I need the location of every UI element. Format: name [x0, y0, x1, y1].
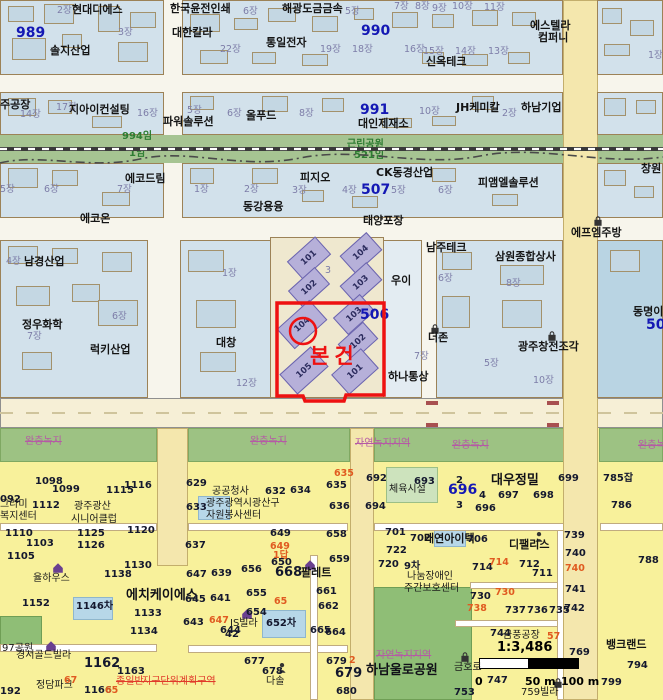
map-label: 한국윤전인쇄 [170, 3, 231, 14]
map-label: 697 [498, 491, 519, 501]
building-footprint [634, 186, 654, 198]
map-label: 7장 [27, 332, 42, 342]
map-label: 16장 [404, 45, 425, 55]
map-label: 1120 [127, 526, 155, 536]
map-label: 에스텔라 [530, 20, 570, 31]
map-label: 699 [558, 474, 579, 484]
street [188, 645, 348, 653]
map-label: 대창 [216, 337, 236, 348]
map-label: 8장 [299, 109, 314, 119]
map-label: 피지오 [300, 172, 330, 183]
map-label: 16장 [137, 109, 158, 119]
map-label: 50 m [525, 676, 556, 687]
map-label: 주간보호센터 [404, 584, 459, 594]
map-label: 완충녹지 [638, 441, 663, 451]
map-label: 644 [220, 626, 241, 636]
map-label: 735 [549, 606, 570, 616]
map-label: 632 [265, 487, 286, 497]
map-label: 9장 [432, 4, 447, 14]
map-label: 799 [601, 678, 622, 688]
building-footprint [312, 16, 338, 32]
map-label: 738 [467, 604, 487, 614]
map-label: 피앰엘솔루션 [478, 177, 539, 188]
map-label: 736 [527, 606, 548, 616]
map-canvas[interactable]: 1011021041031041031021051012장현대디에스9893장솔… [0, 0, 663, 700]
map-label: 1134 [130, 627, 158, 637]
map-label: 740 [565, 549, 586, 559]
map-label: 5장 [187, 106, 202, 116]
map-label: 디팰리스 [509, 539, 549, 550]
building-footprint [636, 100, 656, 114]
map-label: 광주창전조각 [518, 341, 579, 352]
map-label: 8장 [415, 2, 430, 12]
house-icon [45, 637, 57, 649]
map-label: 대한칼라 [172, 27, 212, 38]
building-footprint [102, 252, 132, 272]
map-label: 22장 [220, 45, 241, 55]
map-label: 788 [638, 556, 659, 566]
map-label: 635 [334, 469, 354, 479]
map-label: 1112 [32, 501, 60, 511]
map-label: 696 [475, 504, 496, 514]
building-footprint [442, 252, 472, 270]
map-label: 우이 [391, 275, 411, 286]
map-label: 4 [479, 491, 486, 501]
map-label: 완충녹지 [250, 437, 287, 447]
crosswalk-mark [547, 401, 559, 405]
map-label: 649 [270, 529, 291, 539]
map-label: 737 [505, 606, 526, 616]
map-label: 2 [349, 656, 356, 666]
map-label: 635 [326, 481, 347, 491]
map-label: 5장 [484, 359, 499, 369]
map-label: 근린공원 [347, 140, 384, 150]
map-label: 창원 [641, 163, 661, 174]
map-label: 해광도금금속 [282, 3, 343, 14]
map-label: 올푸드 [246, 110, 276, 121]
map-label: 대우정밀 [491, 474, 539, 487]
shopping-bag-icon [459, 648, 471, 660]
map-label: 동강용융 [243, 201, 283, 212]
map-label: 2장 [502, 109, 517, 119]
map-label: 에코드림 [125, 173, 165, 184]
street [455, 620, 565, 627]
building-footprint [602, 8, 622, 24]
map-label: 67 [64, 676, 77, 686]
building-footprint [190, 168, 214, 184]
map-label: 698 [533, 491, 554, 501]
building-footprint [196, 300, 236, 328]
building-footprint [234, 18, 258, 30]
map-label: 989 [16, 26, 45, 40]
map-label: 3 [456, 501, 463, 511]
map-label: 1125 [77, 529, 105, 539]
map-label: 991 [360, 103, 389, 117]
building-footprint [92, 116, 122, 128]
map-label: 4장 [342, 186, 357, 196]
map-label: 1103 [26, 539, 54, 549]
map-label: 14장 [20, 110, 41, 120]
map-label: 그라미 [0, 500, 28, 510]
map-label: 785잡 [603, 474, 633, 484]
map-label: 본건 [310, 346, 359, 367]
map-label: 711 [532, 569, 553, 579]
map-label: 659 [329, 555, 350, 565]
building-footprint [252, 168, 278, 184]
map-label: 2 [456, 476, 463, 486]
building-footprint [118, 42, 148, 62]
map-label: 794 [627, 661, 648, 671]
map-label: 19장 [320, 45, 341, 55]
map-label: 18장 [352, 45, 373, 55]
map-label: 2장 [244, 185, 259, 195]
map-label: 6장 [112, 312, 127, 322]
map-label: 1105 [7, 552, 35, 562]
map-label: 521임 [354, 151, 384, 161]
map-label: 에코온 [80, 213, 110, 224]
map-label: 1138 [104, 570, 132, 580]
map-label: 658 [326, 530, 347, 540]
map-label: 730 [470, 592, 491, 602]
map-label: 광주광산 [74, 502, 111, 512]
map-label: 645 [185, 595, 206, 605]
building-footprint [16, 286, 50, 306]
map-label: 동명이 [633, 306, 663, 317]
map-label: 706 [467, 535, 488, 545]
map-label: 1162 [84, 657, 120, 670]
map-label: 661 [316, 587, 337, 597]
map-label: 714 [489, 558, 509, 568]
map-label: 664 [325, 628, 346, 638]
map-label: 태양포장 [363, 215, 403, 226]
map-label: 1임 [129, 149, 145, 159]
map-label: 7장 [394, 2, 409, 12]
map-label: 633 [186, 503, 207, 513]
map-label: 삼원종합상사 [495, 251, 556, 262]
map-label: 7장 [117, 185, 132, 195]
building-footprint [502, 300, 542, 328]
map-label: 741 [565, 585, 586, 595]
map-label: 679 [335, 667, 362, 680]
map-label: 7장 [414, 352, 429, 362]
shopping-bag-icon [592, 212, 604, 224]
map-label: 1:3,486 [497, 641, 552, 654]
map-label: 656 [241, 565, 262, 575]
map-label: 신옥테크 [426, 56, 466, 67]
map-label: 자원봉사센터 [206, 511, 261, 521]
building-footprint [432, 168, 456, 182]
map-label: 복지센터 [0, 512, 37, 522]
map-label: 662 [318, 602, 339, 612]
building-number: 104 [292, 315, 312, 334]
map-label: 50 [646, 318, 663, 332]
map-label: 3 [325, 266, 331, 276]
map-label: 994임 [122, 132, 152, 142]
map-label: 639 [211, 569, 232, 579]
building-number: 101 [299, 248, 319, 267]
building-number: 102 [299, 278, 319, 297]
map-label: 1133 [134, 609, 162, 619]
map-label: 668 [275, 566, 302, 579]
map-label: 1152 [22, 599, 50, 609]
map-label: 6장 [227, 109, 242, 119]
street [600, 523, 663, 531]
map-label: 컴퍼니 [538, 32, 568, 43]
road [157, 428, 188, 566]
scale-bar-white [479, 658, 529, 669]
map-label: 730 [495, 588, 515, 598]
map-label: 1장 [222, 269, 237, 279]
map-label: 507 [361, 183, 390, 197]
map-label: 10장 [533, 376, 554, 386]
map-label: 1126 [77, 541, 105, 551]
map-label: 하남기업 [521, 102, 561, 113]
map-label: 769 [569, 648, 590, 658]
map-label: 13장 [488, 47, 509, 57]
building-footprint [442, 296, 470, 328]
crosswalk-mark [426, 423, 438, 427]
map-label: 더존 [428, 332, 448, 343]
map-label: 하나통상 [388, 371, 428, 382]
building-footprint [252, 52, 276, 64]
map-label: 65 [105, 686, 118, 696]
map-label: 5장 [391, 186, 406, 196]
building-footprint [432, 14, 454, 28]
map-label: 680 [336, 687, 357, 697]
shopping-bag-icon [546, 327, 558, 339]
map-label: 공공청사 [212, 487, 249, 497]
building-footprint [604, 98, 626, 116]
map-label: 남경산업 [24, 256, 64, 267]
building-footprint [188, 250, 224, 272]
scale-bar-black [529, 658, 579, 669]
map-label: 0 [475, 676, 483, 687]
building-footprint [200, 352, 236, 372]
map-label: 6장 [438, 186, 453, 196]
building-footprint [610, 250, 640, 272]
map-label: 10장 [419, 107, 440, 117]
map-label: 652차 [266, 619, 296, 629]
building-footprint [604, 44, 630, 56]
map-label: 654 [246, 608, 267, 618]
building-footprint [12, 38, 46, 60]
map-label: 693 [414, 477, 435, 487]
map-label: 1116 [124, 481, 152, 491]
map-label: 747 [487, 676, 508, 686]
map-label: 1장 [194, 185, 209, 195]
building-footprint [630, 20, 654, 36]
map-label: 12장 [236, 379, 257, 389]
map-label: 1146차 [76, 602, 113, 612]
map-label: 192 [0, 687, 21, 697]
map-label: 6장 [243, 7, 258, 17]
map-label: 629 [186, 479, 207, 489]
map-label: 솔지산업 [50, 45, 90, 56]
map-label: 남주테크 [426, 242, 466, 253]
map-label: 739 [564, 531, 585, 541]
building-footprint [492, 194, 518, 206]
map-label: 에프엠주방 [571, 227, 622, 238]
map-label: 634 [290, 486, 311, 496]
map-label: 시니어클럽 [71, 515, 117, 525]
map-label: 8장 [506, 279, 521, 289]
map-label: 3장 [118, 28, 133, 38]
map-label: 1099 [52, 485, 80, 495]
building-footprint [302, 54, 328, 66]
buffer-strip [0, 428, 157, 462]
map-label: 럭키산업 [90, 344, 130, 355]
map-label: 701 [385, 528, 406, 538]
building-footprint [130, 12, 156, 28]
building-number: 103 [351, 273, 371, 292]
map-label: 지구단위계획구역 [142, 677, 216, 687]
map-label: 5장 [345, 7, 360, 17]
house-icon [52, 559, 64, 571]
street [470, 582, 565, 589]
street [188, 523, 348, 531]
map-label: 다솔 [266, 677, 284, 687]
map-label: 자연녹지지역 [355, 439, 410, 449]
map-label: 722 [386, 546, 407, 556]
map-label: 100 m [561, 676, 599, 687]
map-label: 720 [378, 560, 399, 570]
building-footprint [22, 352, 52, 370]
map-label: 정우화학 [22, 319, 62, 330]
building-footprint [8, 6, 34, 22]
map-label: 11장 [484, 3, 505, 13]
map-label: 종일반 [116, 677, 144, 687]
building-footprint [432, 116, 456, 126]
map-label: 647 [186, 570, 207, 580]
map-label: 완충녹지 [25, 437, 62, 447]
map-label: 광주광역시광산구 [206, 499, 280, 509]
map-label: 1장 [648, 51, 663, 61]
map-label: 6장 [44, 185, 59, 195]
map-label: 4장 [6, 257, 21, 267]
map-label: JH케미칼 [456, 102, 500, 113]
map-label: 786 [611, 501, 632, 511]
map-label: 2장 [57, 6, 72, 16]
map-label: 5장 [0, 185, 15, 195]
map-label: 율하우스 [33, 574, 70, 584]
map-label: 740 [565, 564, 585, 574]
building-footprint [604, 170, 626, 186]
map-label: 3장 [292, 186, 307, 196]
map-label: 뱅크랜드 [606, 639, 646, 650]
map-label: 990 [361, 24, 390, 38]
park [374, 587, 472, 700]
map-label: 경서골드빌라 [16, 651, 71, 661]
map-label: 759빌라 [521, 688, 559, 698]
map-label: 637 [185, 541, 206, 551]
crosswalk-mark [426, 401, 438, 405]
map-label: CK동경산업 [376, 167, 433, 178]
map-label: 636 [329, 502, 350, 512]
map-label: 완충녹지 [452, 441, 489, 451]
map-label: 파워솔루션 [163, 116, 214, 127]
map-label: 하남울로공원 [366, 664, 438, 677]
map-label: 65 [274, 597, 287, 607]
building-footprint [72, 284, 100, 302]
map-label: 506 [360, 308, 389, 322]
building-footprint [392, 12, 418, 28]
map-label: 통일전자 [266, 37, 306, 48]
map-label: 692 [366, 474, 387, 484]
map-label: 지아이컨설팅 [69, 104, 130, 115]
map-label: 나눔장애인 [407, 572, 453, 582]
map-label: 금호로 [454, 663, 482, 673]
crosswalk-mark [547, 423, 559, 427]
map-label: 643 [183, 618, 204, 628]
map-label: 대인제재소 [358, 118, 409, 129]
building-footprint [322, 98, 344, 112]
building-number: 104 [351, 243, 371, 262]
map-label: 현대디에스 [72, 4, 123, 15]
map-label: 694 [365, 502, 386, 512]
map-label: 자연녹지지역 [376, 651, 431, 661]
map-label: 팔레트 [301, 567, 331, 578]
map-label: 753 [454, 688, 475, 698]
map-label: 655 [246, 589, 267, 599]
map-label: 10장 [452, 2, 473, 12]
building-footprint [508, 52, 530, 64]
map-label: 641 [210, 594, 231, 604]
map-label: 6장 [438, 274, 453, 284]
